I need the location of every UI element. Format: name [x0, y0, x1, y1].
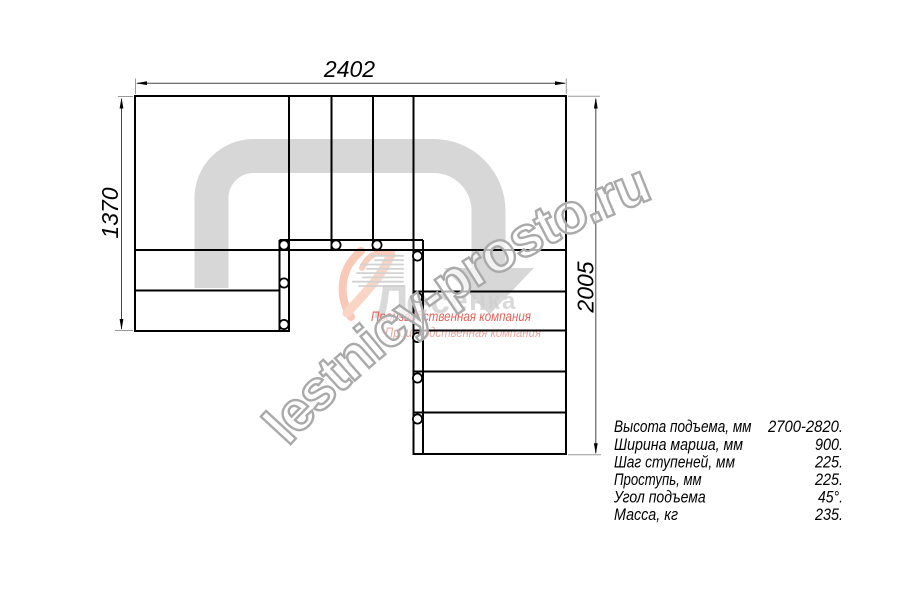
svg-text:Угол подъема: Угол подъема	[613, 489, 706, 507]
svg-text:Ширина марша, мм: Ширина марша, мм	[614, 436, 743, 454]
svg-text:45°.: 45°.	[818, 489, 843, 507]
svg-text:235.: 235.	[814, 506, 843, 524]
svg-text:225.: 225.	[814, 471, 843, 489]
svg-text:Масса, кг: Масса, кг	[614, 506, 678, 524]
svg-text:2700-2820.: 2700-2820.	[767, 418, 843, 436]
svg-text:Проступь, мм: Проступь, мм	[614, 471, 702, 489]
svg-text:225.: 225.	[814, 454, 843, 472]
svg-text:Высота подъема, мм: Высота подъема, мм	[614, 418, 752, 436]
svg-text:Шаг ступеней, мм: Шаг ступеней, мм	[614, 454, 735, 472]
svg-text:900.: 900.	[815, 436, 843, 454]
svg-text:2005: 2005	[573, 261, 599, 313]
svg-text:2402: 2402	[323, 56, 375, 82]
svg-text:1370: 1370	[97, 187, 123, 238]
